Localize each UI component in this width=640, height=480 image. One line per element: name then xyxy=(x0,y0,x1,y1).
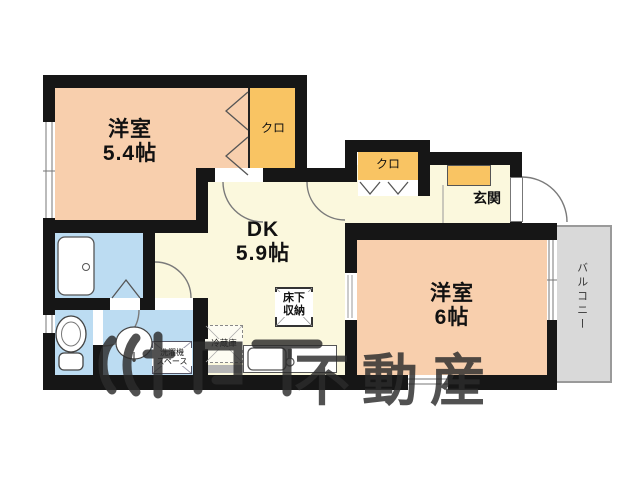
sliding-door-dk-west2 xyxy=(345,273,357,320)
wall xyxy=(430,152,522,165)
floor-plan: 洋室 5.4帖 DK 5.9帖 洋室 6帖 クロ クロ 玄関 バルコニー 床下 … xyxy=(0,0,640,480)
wall xyxy=(43,75,55,122)
wall xyxy=(345,320,357,375)
closet-2-label: クロ xyxy=(358,158,418,172)
shoe-cabinet xyxy=(447,165,491,186)
closet-2-door-strip xyxy=(358,180,418,196)
washroom-step xyxy=(203,365,243,373)
door-arc-entrance xyxy=(522,177,567,222)
bathroom xyxy=(55,233,143,298)
wall xyxy=(345,223,357,273)
hallway-by-bath xyxy=(155,233,208,298)
toilet-room xyxy=(55,310,93,375)
room-size: 5.9帖 xyxy=(236,242,290,265)
wall xyxy=(43,298,110,310)
doorway-west1-dk xyxy=(215,168,263,182)
balcony-label: バルコニー xyxy=(575,262,588,332)
balcony-label-text: バルコニー xyxy=(576,262,588,332)
window-west2-right xyxy=(547,240,557,320)
wall xyxy=(193,298,208,375)
closet-label-text: クロ xyxy=(376,157,400,171)
refrigerator-label: 冷蔵庫 xyxy=(205,339,243,349)
window-west2-bottom xyxy=(408,375,448,390)
dk-label: DK 5.9帖 xyxy=(203,218,323,266)
wall xyxy=(140,298,155,310)
closet-1-frame-line xyxy=(248,88,250,168)
washroom-door-gap xyxy=(155,298,193,310)
wall xyxy=(510,152,522,177)
wall xyxy=(43,75,307,88)
wall xyxy=(547,320,557,375)
window-west1-left xyxy=(43,122,55,218)
underfloor-line2: 収納 xyxy=(283,305,305,317)
wall xyxy=(263,168,357,182)
room-name: 洋室 xyxy=(108,118,152,141)
refrigerator-label-text: 冷蔵庫 xyxy=(211,338,237,348)
bathroom-door-gap xyxy=(110,298,140,310)
room-size: 5.4帖 xyxy=(103,142,157,165)
wall xyxy=(43,375,408,390)
entrance-label-text: 玄関 xyxy=(473,190,501,206)
wall xyxy=(143,225,155,298)
kitchen-counter xyxy=(243,345,337,373)
underfloor-line1: 床下 xyxy=(283,292,305,304)
wall xyxy=(295,75,307,168)
window-toilet-left xyxy=(43,315,55,333)
hall-dk-opening xyxy=(345,182,357,223)
room-name: DK xyxy=(247,218,279,241)
wall xyxy=(345,223,557,240)
wall xyxy=(345,140,430,152)
wall xyxy=(93,345,103,375)
wall xyxy=(418,152,430,196)
washer-line1: 洗濯機 xyxy=(160,348,184,357)
wall xyxy=(43,220,208,233)
entrance-label: 玄関 xyxy=(462,190,512,206)
closet-1-label: クロ xyxy=(252,122,294,136)
room-name: 洋室 xyxy=(430,282,474,305)
room-size: 6帖 xyxy=(435,306,470,329)
wall xyxy=(345,140,357,182)
west-room-2-label: 洋室 6帖 xyxy=(392,282,512,330)
washer-line2: スペース xyxy=(156,357,187,366)
closet-label-text: クロ xyxy=(261,121,285,135)
wall xyxy=(448,375,557,390)
underfloor-storage-label: 床下 収納 xyxy=(275,292,313,317)
west-room-1-label: 洋室 5.4帖 xyxy=(70,118,190,166)
west-room-1 xyxy=(55,168,196,220)
washer-space-label: 洗濯機 スペース xyxy=(152,348,192,366)
wall xyxy=(510,222,522,240)
